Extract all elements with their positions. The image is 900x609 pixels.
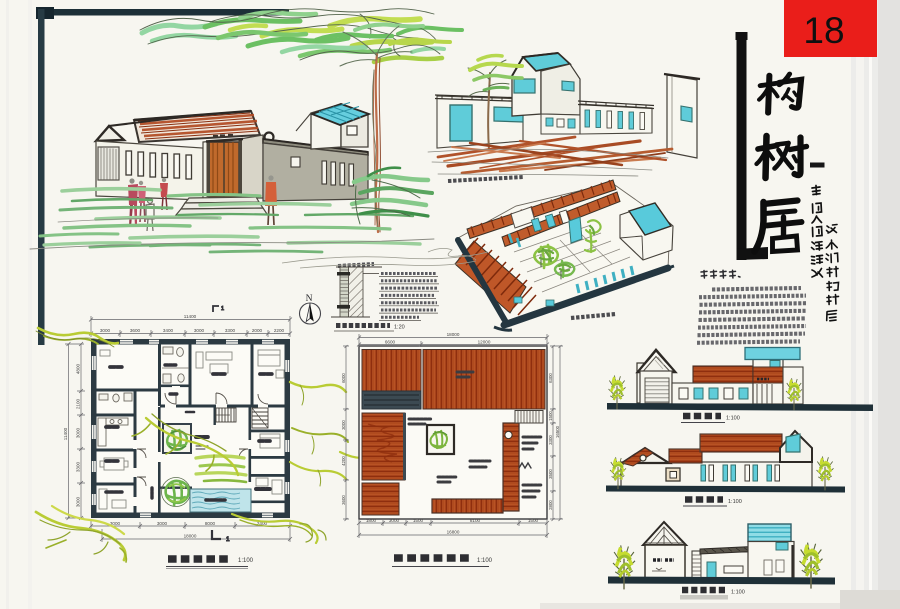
svg-text:3000: 3000 (76, 496, 81, 507)
svg-text:1:100: 1:100 (726, 416, 740, 422)
svg-text:1800: 1800 (366, 518, 377, 523)
svg-text:8000: 8000 (205, 521, 216, 526)
svg-text:2000: 2000 (252, 328, 263, 333)
svg-text:6000: 6000 (341, 373, 346, 383)
svg-text:1500: 1500 (528, 518, 539, 523)
svg-text:8100: 8100 (470, 518, 481, 523)
svg-text:3000: 3000 (157, 521, 168, 526)
svg-text:16500: 16500 (555, 425, 560, 438)
svg-text:1:100: 1:100 (728, 499, 742, 505)
svg-text:3300: 3300 (76, 461, 81, 472)
svg-text:3000: 3000 (100, 328, 111, 333)
svg-text:6600: 6600 (385, 340, 396, 345)
svg-text:3500: 3500 (548, 469, 553, 479)
svg-text:1500: 1500 (548, 411, 553, 421)
svg-text:11400: 11400 (184, 314, 197, 319)
svg-text:3300: 3300 (548, 435, 553, 445)
svg-text:6300: 6300 (548, 373, 553, 383)
svg-text:3000: 3000 (76, 427, 81, 438)
svg-text:18000: 18000 (447, 332, 460, 337)
svg-text:3600: 3600 (130, 328, 141, 333)
svg-text:12000: 12000 (478, 340, 491, 345)
svg-text:1: 1 (221, 306, 224, 312)
svg-text:2800: 2800 (548, 500, 553, 510)
svg-text:1: 1 (226, 536, 230, 543)
svg-text:1500: 1500 (413, 518, 424, 523)
svg-text:2100: 2100 (76, 398, 81, 409)
svg-text:3000: 3000 (389, 518, 400, 523)
svg-text:1:20: 1:20 (394, 325, 405, 331)
svg-text:18000: 18000 (184, 534, 197, 539)
svg-text:1:100: 1:100 (477, 558, 493, 564)
svg-text:3000: 3000 (194, 328, 205, 333)
svg-text:3400: 3400 (163, 328, 174, 333)
svg-text:3600: 3600 (341, 495, 346, 505)
svg-text:1:100: 1:100 (731, 590, 745, 596)
svg-text:4200: 4200 (341, 456, 346, 466)
svg-text:3000: 3000 (341, 420, 346, 430)
svg-text:4800: 4800 (76, 363, 81, 374)
svg-text:2200: 2200 (274, 328, 285, 333)
svg-text:11400: 11400 (63, 427, 68, 440)
svg-text:16800: 16800 (447, 530, 460, 535)
svg-text:18: 18 (803, 10, 844, 51)
svg-text:1:100: 1:100 (238, 558, 254, 564)
svg-text:3300: 3300 (225, 328, 236, 333)
